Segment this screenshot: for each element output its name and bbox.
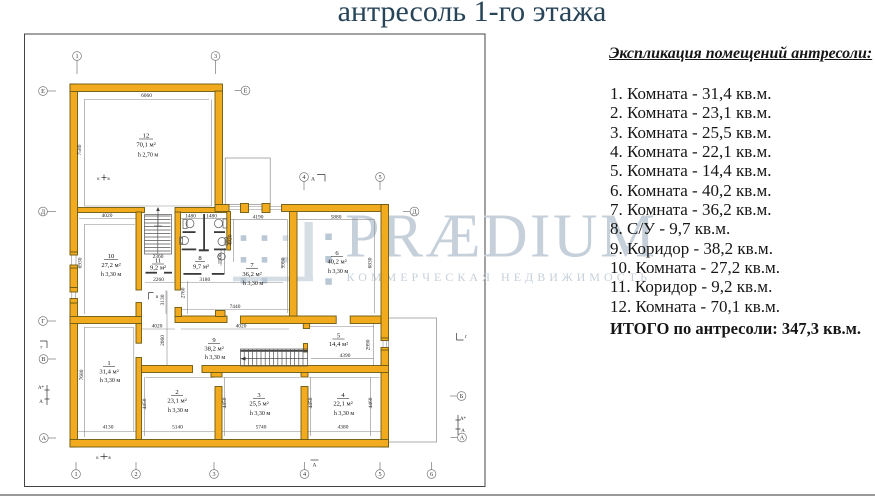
svg-text:В: В bbox=[41, 356, 45, 363]
svg-text:4380: 4380 bbox=[338, 425, 349, 431]
svg-text:70,1 м²: 70,1 м² bbox=[136, 142, 155, 149]
svg-text:5740: 5740 bbox=[256, 425, 267, 431]
svg-text:КОММЕРЧЕСКАЯ НЕДВИЖИМОСТЬ: КОММЕРЧЕСКАЯ НЕДВИЖИМОСТЬ bbox=[347, 270, 652, 284]
svg-text:5: 5 bbox=[378, 174, 381, 181]
svg-text:4460: 4460 bbox=[368, 397, 374, 408]
svg-text:3: 3 bbox=[212, 471, 215, 478]
svg-text:h 3,30 м: h 3,30 м bbox=[328, 269, 349, 275]
svg-text:в: в bbox=[108, 456, 111, 461]
svg-text:Е: Е bbox=[244, 88, 248, 95]
svg-text:4920: 4920 bbox=[228, 234, 234, 245]
svg-text:6830: 6830 bbox=[368, 257, 374, 268]
svg-text:9,7 м²: 9,7 м² bbox=[193, 264, 209, 271]
svg-text:А: А bbox=[313, 463, 317, 469]
svg-text:9990: 9990 bbox=[281, 257, 287, 268]
svg-text:2990: 2990 bbox=[366, 339, 372, 350]
svg-text:1480: 1480 bbox=[206, 214, 217, 220]
svg-text:А: А bbox=[461, 429, 465, 434]
svg-text:2: 2 bbox=[175, 389, 178, 396]
svg-text:h 3,30 м: h 3,30 м bbox=[168, 408, 189, 414]
svg-text:40,2 м²: 40,2 м² bbox=[327, 259, 346, 266]
svg-text:6930: 6930 bbox=[78, 257, 84, 268]
svg-text:23,1 м²: 23,1 м² bbox=[167, 398, 186, 405]
svg-text:h 3,30 м: h 3,30 м bbox=[100, 378, 121, 384]
svg-text:h 3,30 м: h 3,30 м bbox=[101, 272, 122, 278]
svg-text:4: 4 bbox=[341, 392, 345, 399]
svg-text:в: в bbox=[156, 295, 159, 300]
svg-text:2760: 2760 bbox=[181, 287, 187, 298]
svg-text:22,1 м²: 22,1 м² bbox=[333, 401, 352, 408]
svg-text:4: 4 bbox=[303, 471, 306, 478]
svg-text:4: 4 bbox=[302, 174, 305, 181]
svg-text:5: 5 bbox=[378, 471, 381, 478]
svg-text:А: А bbox=[42, 435, 47, 442]
svg-text:3130: 3130 bbox=[160, 294, 166, 305]
svg-text:4450: 4450 bbox=[222, 397, 228, 408]
svg-text:Е: Е bbox=[41, 88, 45, 95]
svg-text:Г: Г bbox=[41, 318, 45, 325]
svg-text:h 3,30 м: h 3,30 м bbox=[205, 355, 226, 361]
svg-text:в: в bbox=[107, 177, 110, 182]
svg-text:36,2 м²: 36,2 м² bbox=[242, 271, 261, 278]
svg-text:2260: 2260 bbox=[153, 277, 164, 283]
svg-text:3: 3 bbox=[214, 53, 217, 60]
svg-text:38,2 м²: 38,2 м² bbox=[204, 346, 223, 353]
svg-text:h 3,30 м: h 3,30 м bbox=[250, 411, 271, 417]
svg-text:3180: 3180 bbox=[199, 277, 210, 283]
svg-text:А*: А* bbox=[460, 417, 467, 422]
svg-text:27,2 м²: 27,2 м² bbox=[101, 262, 120, 269]
svg-text:10: 10 bbox=[108, 253, 115, 260]
svg-text:h 2,70 м: h 2,70 м bbox=[138, 153, 159, 159]
svg-text:h 3,30 м: h 3,30 м bbox=[243, 281, 264, 287]
svg-text:4130: 4130 bbox=[103, 425, 114, 431]
svg-text:4190: 4190 bbox=[253, 214, 264, 220]
svg-text:А: А bbox=[39, 400, 43, 405]
svg-text:h 3,30 м: h 3,30 м bbox=[334, 411, 355, 417]
svg-text:4450: 4450 bbox=[142, 398, 148, 409]
svg-text:г: г bbox=[465, 334, 468, 340]
svg-text:Д: Д bbox=[41, 209, 46, 216]
svg-text:2060: 2060 bbox=[160, 335, 166, 346]
svg-text:11: 11 bbox=[155, 258, 161, 265]
svg-text:12: 12 bbox=[143, 133, 150, 140]
svg-text:4020: 4020 bbox=[236, 324, 247, 330]
svg-text:5880: 5880 bbox=[331, 214, 342, 220]
svg-text:7580: 7580 bbox=[77, 144, 83, 155]
svg-text:А: А bbox=[311, 177, 315, 183]
svg-text:25,5 м²: 25,5 м² bbox=[249, 401, 268, 408]
svg-text:9: 9 bbox=[212, 337, 216, 344]
svg-text:Б: Б bbox=[460, 393, 464, 400]
svg-text:г: г bbox=[40, 345, 43, 351]
svg-text:5: 5 bbox=[337, 333, 341, 340]
svg-text:14,4 м²: 14,4 м² bbox=[329, 341, 348, 348]
svg-text:6060: 6060 bbox=[141, 93, 152, 99]
svg-text:2: 2 bbox=[134, 471, 137, 478]
svg-text:31,4 м²: 31,4 м² bbox=[99, 369, 118, 376]
svg-text:7440: 7440 bbox=[230, 304, 241, 310]
svg-text:3: 3 bbox=[257, 392, 261, 399]
svg-text:к: к bbox=[97, 177, 100, 182]
svg-text:4390: 4390 bbox=[340, 353, 351, 359]
svg-text:4450: 4450 bbox=[308, 397, 314, 408]
svg-text:1480: 1480 bbox=[185, 214, 196, 220]
svg-text:1: 1 bbox=[75, 53, 78, 60]
svg-text:9,2 м²: 9,2 м² bbox=[150, 265, 166, 272]
svg-text:4020: 4020 bbox=[152, 324, 163, 330]
svg-text:А: А bbox=[460, 435, 465, 442]
svg-text:6: 6 bbox=[335, 250, 339, 257]
svg-text:1: 1 bbox=[107, 360, 110, 367]
svg-text:7680: 7680 bbox=[79, 369, 85, 380]
svg-text:к: к bbox=[96, 456, 99, 461]
svg-text:4020: 4020 bbox=[102, 213, 113, 219]
svg-text:7: 7 bbox=[250, 262, 254, 269]
svg-text:6: 6 bbox=[430, 471, 433, 478]
svg-text:8: 8 bbox=[198, 255, 202, 262]
svg-text:А*: А* bbox=[38, 386, 45, 391]
svg-text:1: 1 bbox=[74, 471, 77, 478]
svg-text:1500: 1500 bbox=[218, 253, 224, 264]
svg-text:5140: 5140 bbox=[172, 425, 183, 431]
